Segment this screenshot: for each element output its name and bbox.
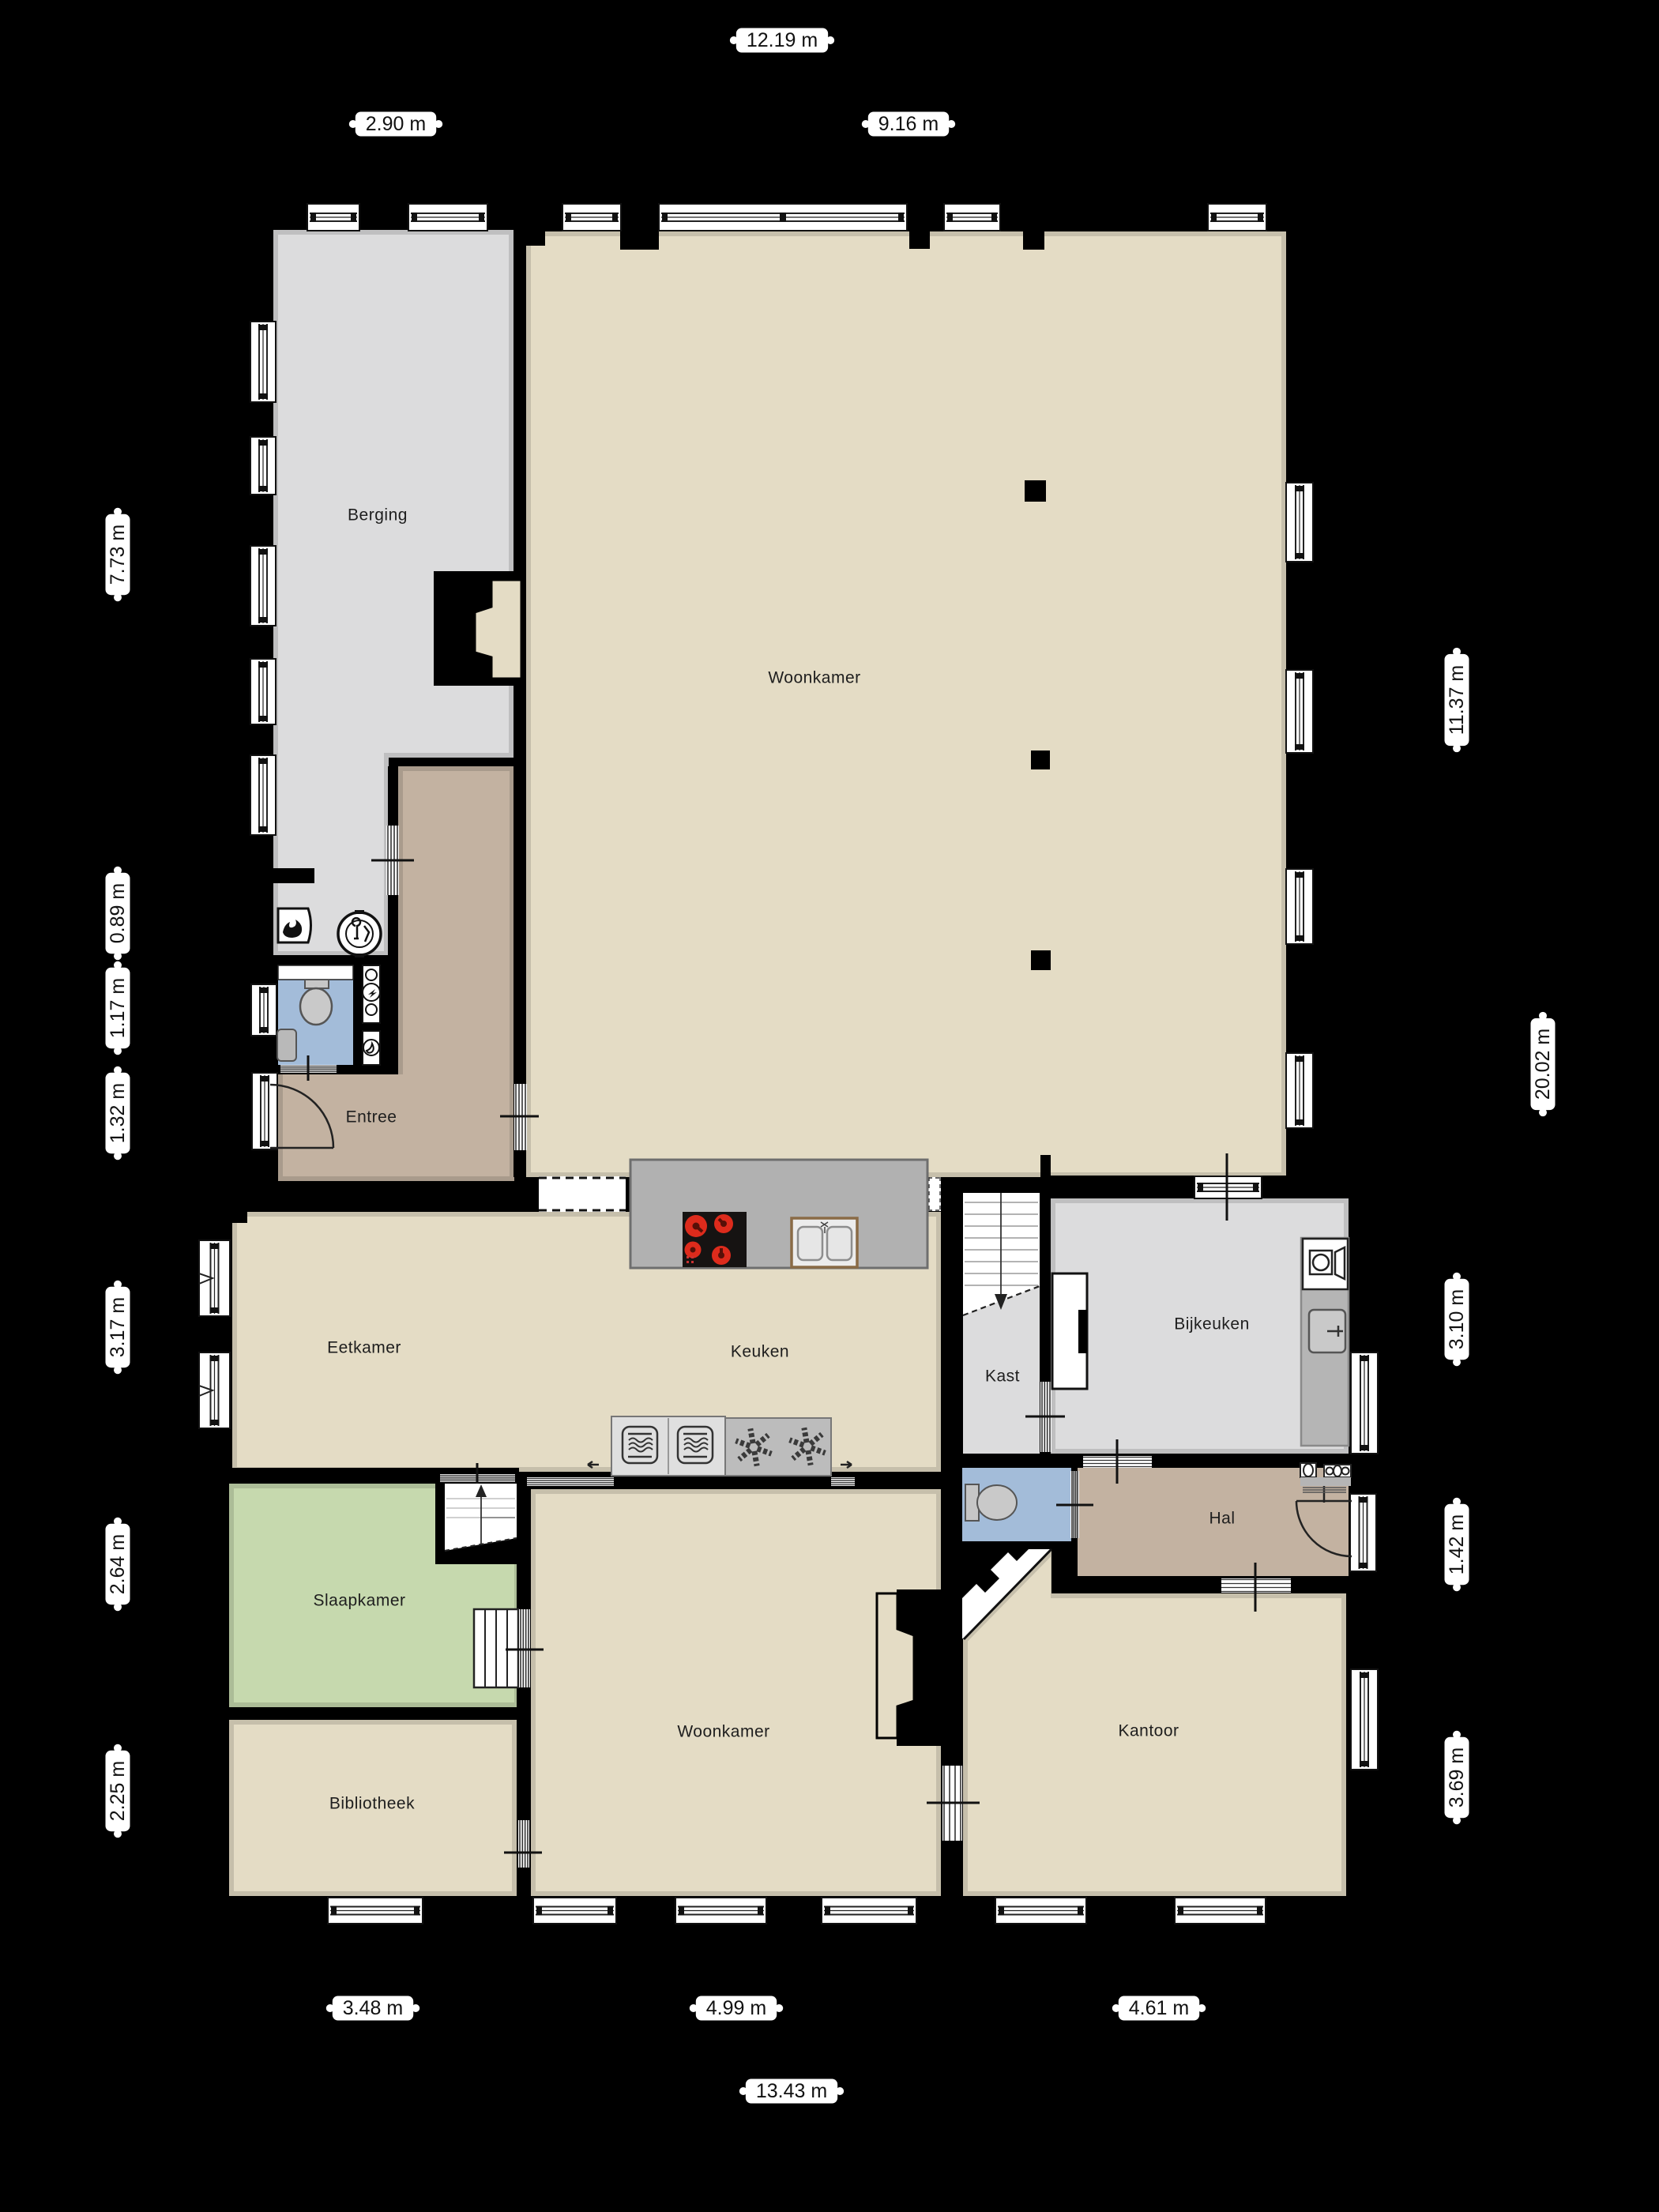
- svg-text:Bibliotheek: Bibliotheek: [329, 1795, 415, 1813]
- svg-text:Kast: Kast: [985, 1367, 1020, 1386]
- svg-text:1.32 m: 1.32 m: [107, 1083, 129, 1143]
- svg-text:11.37 m: 11.37 m: [1446, 665, 1468, 735]
- svg-text:Woonkamer: Woonkamer: [768, 669, 860, 687]
- svg-text:12.19 m: 12.19 m: [747, 29, 818, 51]
- svg-text:20.02 m: 20.02 m: [1532, 1029, 1554, 1100]
- svg-text:13.43 m: 13.43 m: [756, 2080, 827, 2102]
- svg-text:Kantoor: Kantoor: [1118, 1722, 1179, 1740]
- svg-text:1.42 m: 1.42 m: [1446, 1514, 1468, 1574]
- svg-text:2.90 m: 2.90 m: [366, 113, 426, 135]
- svg-text:Keuken: Keuken: [731, 1343, 789, 1361]
- svg-text:Eetkamer: Eetkamer: [327, 1339, 401, 1357]
- svg-text:Woonkamer: Woonkamer: [677, 1723, 769, 1741]
- svg-text:3.17 m: 3.17 m: [107, 1297, 129, 1357]
- svg-text:9.16 m: 9.16 m: [878, 113, 939, 135]
- svg-text:2.64 m: 2.64 m: [107, 1534, 129, 1594]
- svg-text:0.89 m: 0.89 m: [107, 883, 129, 943]
- svg-text:1.17 m: 1.17 m: [107, 978, 129, 1038]
- svg-text:4.61 m: 4.61 m: [1129, 1997, 1189, 2019]
- svg-text:7.73 m: 7.73 m: [107, 525, 129, 585]
- svg-text:3.69 m: 3.69 m: [1446, 1747, 1468, 1808]
- svg-text:Berging: Berging: [348, 506, 408, 525]
- svg-text:4.99 m: 4.99 m: [706, 1997, 766, 2019]
- svg-text:Slaapkamer: Slaapkamer: [313, 1592, 405, 1610]
- svg-text:Entree: Entree: [346, 1108, 397, 1127]
- svg-text:Hal: Hal: [1209, 1510, 1235, 1528]
- svg-text:3.48 m: 3.48 m: [343, 1997, 403, 2019]
- svg-text:2.25 m: 2.25 m: [107, 1761, 129, 1821]
- svg-text:3.10 m: 3.10 m: [1446, 1289, 1468, 1349]
- svg-text:Bijkeuken: Bijkeuken: [1174, 1315, 1250, 1334]
